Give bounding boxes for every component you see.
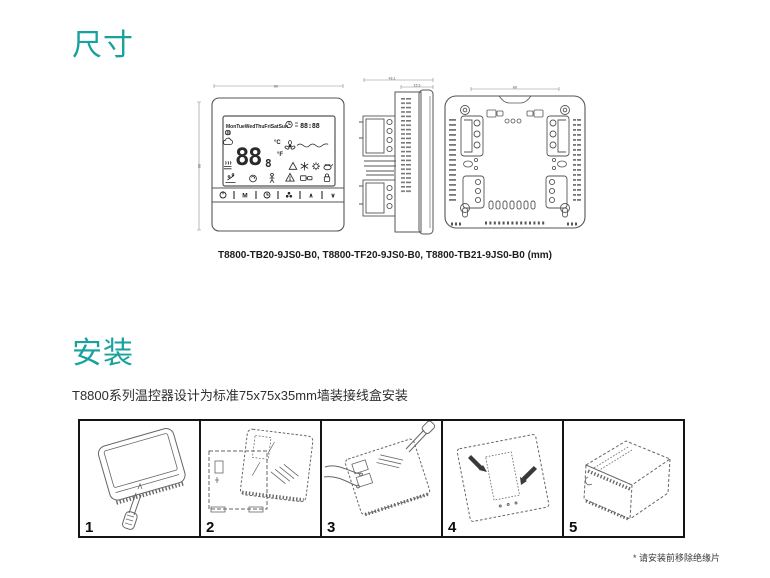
radiator-icon bbox=[226, 131, 231, 135]
power-icon bbox=[220, 191, 226, 198]
lcd-time: 88:88 bbox=[300, 122, 320, 130]
footnote: * 请安装前移除绝缘片 bbox=[633, 551, 720, 564]
cloud-icon bbox=[223, 138, 232, 144]
side-terminal-bottom bbox=[359, 180, 395, 216]
installation-step-4: 4 bbox=[441, 419, 564, 538]
section-title-installation: 安装 bbox=[72, 328, 134, 372]
lcd-unit-fahrenheit: °F bbox=[277, 152, 283, 158]
snowflake-icon bbox=[301, 162, 308, 170]
screwdriver bbox=[122, 484, 142, 530]
base-plate bbox=[344, 438, 430, 515]
lcd-temperature-sub: 8 bbox=[265, 157, 272, 170]
condensate-icon bbox=[226, 174, 236, 183]
sun-icon bbox=[312, 162, 320, 170]
installation-step-1: 1 bbox=[78, 419, 201, 538]
down-button-label: ∨ bbox=[330, 192, 335, 199]
up-button-label: ∧ bbox=[308, 192, 313, 199]
fan-button-icon bbox=[286, 192, 292, 198]
step-5-illustration bbox=[564, 421, 683, 532]
assembled-unit bbox=[584, 441, 670, 519]
keycard-icon bbox=[301, 176, 313, 181]
side-view-drawing: 43.1 15.3 bbox=[356, 76, 440, 236]
step-number: 4 bbox=[448, 520, 456, 537]
mode-button-label: M bbox=[242, 192, 247, 199]
occupancy-icon bbox=[270, 173, 275, 182]
side-clips bbox=[364, 161, 396, 175]
back-terminal-top-left bbox=[461, 116, 483, 156]
side-terminal-top bbox=[359, 116, 395, 156]
section-title-dimensions: 尺寸 bbox=[72, 20, 134, 64]
clock-button-icon bbox=[264, 192, 270, 198]
step-number: 5 bbox=[569, 520, 577, 537]
wires bbox=[324, 466, 362, 488]
model-caption: T8800-TB20-9JS0-B0, T8800-TF20-9JS0-B0, … bbox=[0, 250, 770, 261]
screwdriver bbox=[406, 421, 436, 452]
back-view-drawing: 60 bbox=[441, 84, 591, 232]
lcd-days: MonTueWedThuFriSatSun bbox=[226, 124, 288, 130]
alert-triangle-icon bbox=[289, 163, 297, 170]
step-3-illustration bbox=[322, 421, 441, 532]
filter-icon bbox=[324, 164, 333, 169]
step-4-illustration bbox=[443, 421, 562, 532]
front-width-label: 86 bbox=[274, 84, 279, 89]
lcd-unit-celsius: °C bbox=[274, 140, 281, 146]
step-2-illustration bbox=[201, 421, 320, 532]
back-terminal-top-right bbox=[547, 116, 569, 156]
lock-icon bbox=[324, 174, 329, 182]
back-vent-left bbox=[449, 118, 457, 204]
installation-steps: 1 2 bbox=[78, 419, 685, 538]
step-number: 3 bbox=[327, 520, 335, 537]
step-number: 2 bbox=[206, 520, 214, 537]
dimension-lines bbox=[364, 78, 433, 89]
floor-heat-icon bbox=[224, 161, 232, 169]
back-mid-details bbox=[464, 158, 567, 169]
side-front-depth-label: 15.3 bbox=[414, 83, 421, 87]
fan-wave-icon bbox=[285, 141, 329, 150]
manual-page: 尺寸 86 86 MonTueWedThuFriSatSun 88:88 bbox=[0, 0, 770, 578]
front-module bbox=[240, 429, 314, 503]
side-vent-slats bbox=[401, 98, 411, 194]
front-height-label: 86 bbox=[197, 163, 202, 168]
installation-step-3: 3 bbox=[320, 419, 443, 538]
side-depth-label: 43.1 bbox=[389, 76, 396, 80]
installation-description: T8800系列温控器设计为标准75x75x35mm墙装接线盒安装 bbox=[72, 385, 408, 404]
am-pm-marks bbox=[295, 123, 298, 126]
back-plate bbox=[209, 451, 267, 512]
wall-plate bbox=[457, 434, 550, 522]
installation-step-2: 2 bbox=[199, 419, 322, 538]
installation-step-5: 5 bbox=[562, 419, 685, 538]
back-top-connector bbox=[487, 96, 543, 123]
back-screw-spacing-label: 60 bbox=[513, 84, 518, 89]
step-number: 1 bbox=[85, 520, 93, 537]
back-vent-right bbox=[573, 118, 581, 204]
lcd-temperature: 88 bbox=[235, 143, 261, 171]
warning-icon bbox=[286, 174, 294, 182]
button-row bbox=[212, 188, 344, 202]
screw-arrows bbox=[468, 455, 537, 485]
back-bottom-slots bbox=[451, 201, 579, 224]
night-setback-icon bbox=[250, 175, 257, 182]
front-view-drawing: 86 86 MonTueWedThuFriSatSun 88:88 88 8 °… bbox=[196, 80, 350, 235]
step-1-illustration bbox=[80, 421, 199, 532]
front-body-outline bbox=[212, 98, 344, 231]
